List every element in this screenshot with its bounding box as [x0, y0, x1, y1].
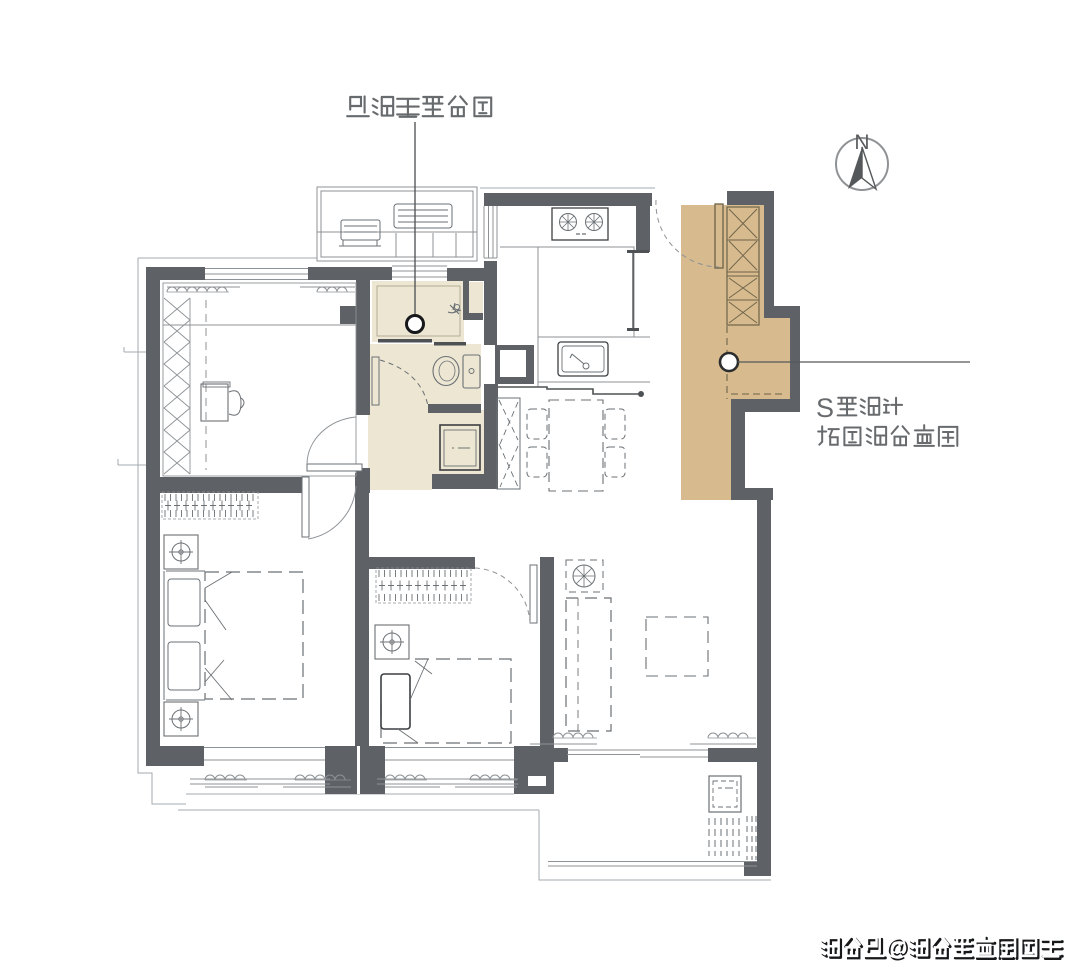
svg-text:@: @ [885, 933, 907, 960]
svg-text:S: S [816, 393, 834, 423]
